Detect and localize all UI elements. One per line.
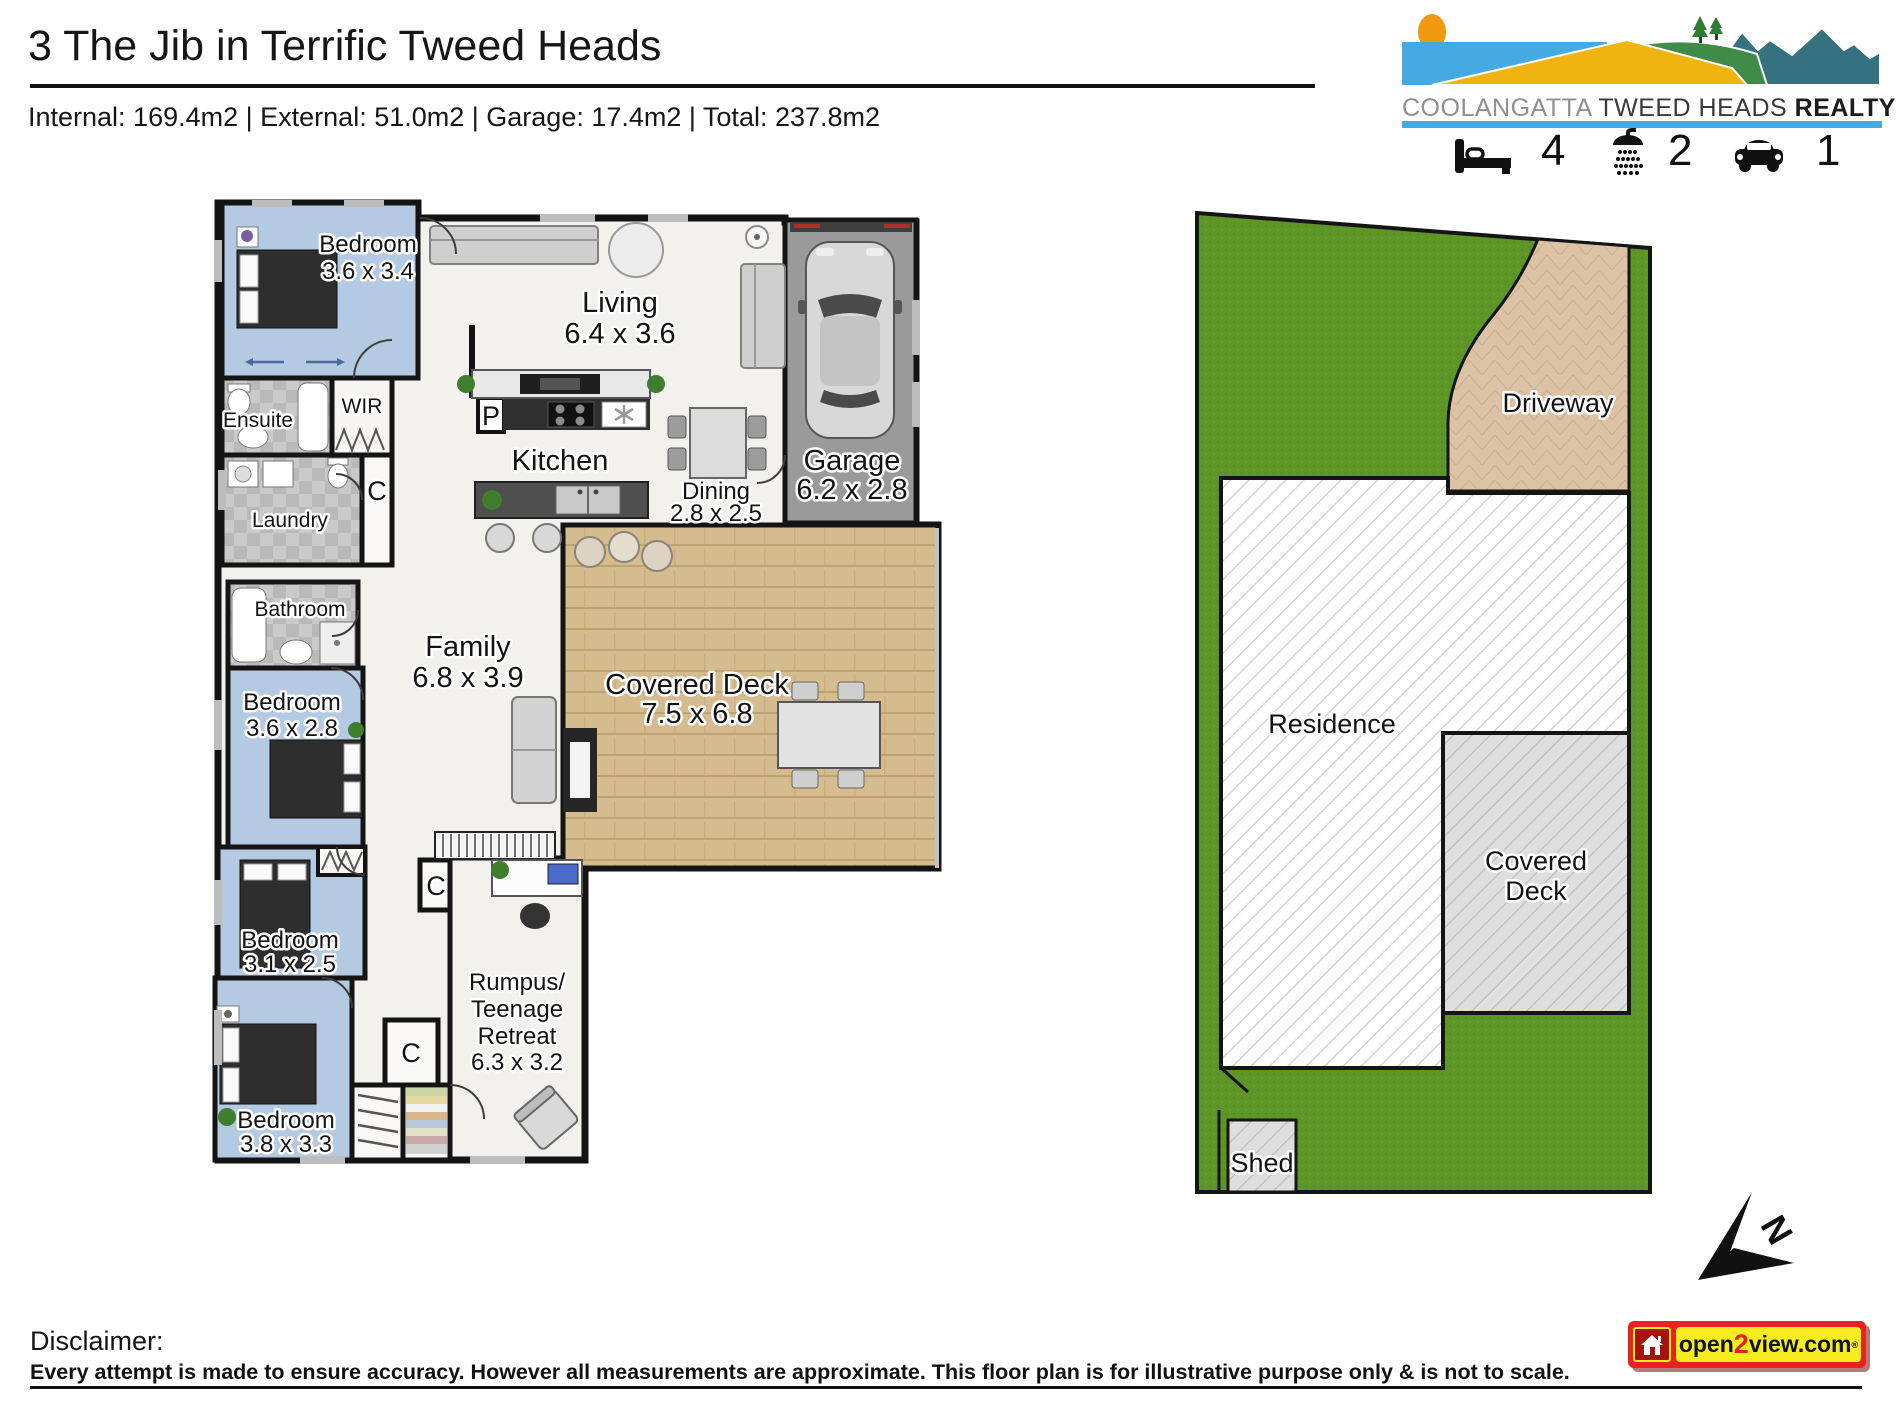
laundry-label: Laundry (252, 509, 328, 532)
closet2-label: C (426, 871, 446, 901)
deck-stool (642, 541, 672, 571)
rumpus-line3: Retreat (478, 1023, 557, 1050)
floorplan-page: 3 The Jib in Terrific Tweed Heads Intern… (0, 0, 1900, 1425)
rumpus-line1: Rumpus/ (469, 969, 565, 996)
shed-label: Shed (1230, 1148, 1293, 1178)
bedroom1-dims: 3.6 x 3.4 (322, 258, 414, 285)
plant-icon (482, 490, 502, 510)
site-plan: Driveway Residence Covered Deck Shed (1197, 213, 1650, 1192)
deck-stool (575, 537, 605, 567)
deck-table (778, 702, 880, 768)
disclaimer-text: Every attempt is made to ensure accuracy… (30, 1360, 1570, 1385)
deck-dims: 7.5 x 6.8 (641, 698, 752, 730)
round-table (609, 223, 663, 277)
closet1-label: C (367, 476, 387, 506)
bedroom3-dims: 3.1 x 2.5 (244, 951, 336, 978)
rumpus-dims: 6.3 x 3.2 (471, 1049, 563, 1076)
bookshelf (406, 1088, 447, 1154)
garage-dims: 6.2 x 2.8 (796, 474, 907, 506)
logo-view: view.com (1749, 1331, 1852, 1358)
family-label: Family (425, 631, 511, 663)
family-dims: 6.8 x 3.9 (412, 662, 523, 694)
car-topview (798, 242, 902, 438)
open2view-logo: open2view.com® (1628, 1321, 1866, 1368)
piano (435, 832, 555, 859)
bedroom1-label: Bedroom (319, 231, 416, 258)
wir-label: WIR (342, 395, 383, 418)
bedroom3-label: Bedroom (241, 927, 338, 954)
living-dims: 6.4 x 3.6 (564, 318, 675, 350)
bedroom2-dims: 3.6 x 2.8 (246, 715, 338, 742)
plant-icon (218, 1108, 236, 1126)
bedroom4-dims: 3.8 x 3.3 (240, 1131, 332, 1158)
stool (486, 524, 514, 552)
dining-dims: 2.8 x 2.5 (670, 500, 762, 527)
north-label: N (1753, 1208, 1802, 1251)
plant-icon (491, 861, 509, 879)
bed-2 (270, 740, 362, 818)
computer-monitor (548, 864, 578, 884)
rumpus-line2: Teenage (471, 996, 563, 1023)
logo-two: 2 (1734, 1329, 1749, 1360)
logo-registered: ® (1852, 1340, 1859, 1350)
open2view-wordmark: open2view.com® (1676, 1327, 1861, 1362)
dining-table (690, 408, 746, 478)
garage-label: Garage (804, 445, 901, 477)
stool (533, 524, 561, 552)
plant-icon (647, 375, 665, 393)
residence-label: Residence (1268, 709, 1396, 739)
sofa-right (741, 264, 785, 368)
house-icon (1633, 1327, 1671, 1362)
deck-label: Covered Deck (605, 669, 789, 701)
closet3-label: C (401, 1038, 421, 1068)
ensuite-label: Ensuite (223, 409, 293, 432)
living-label: Living (582, 287, 658, 319)
office-chair (520, 903, 550, 929)
disclaimer-heading: Disclaimer: (30, 1326, 164, 1357)
driveway-label: Driveway (1502, 388, 1614, 418)
deck-railing (935, 528, 939, 868)
plant-icon (457, 375, 475, 393)
plans-canvas: Bedroom 3.6 x 3.4 Ensuite WIR Laundry C … (0, 0, 1900, 1425)
deck-stool (609, 532, 639, 562)
cooktop (548, 402, 594, 427)
laundry-fixtures (228, 458, 348, 488)
bedroom2-label: Bedroom (243, 689, 340, 716)
pantry-label: P (482, 401, 500, 431)
bathroom-label: Bathroom (254, 598, 345, 621)
site-deck-label-2: Deck (1505, 876, 1567, 906)
footer-divider (30, 1386, 1862, 1389)
floor-plan: Bedroom 3.6 x 3.4 Ensuite WIR Laundry C … (214, 200, 939, 1164)
plant-icon (348, 722, 364, 738)
site-deck-label-1: Covered (1485, 846, 1587, 876)
logo-open: open (1679, 1331, 1734, 1358)
kitchen-label: Kitchen (512, 445, 609, 477)
room-closet-1 (362, 455, 392, 565)
bedroom4-label: Bedroom (237, 1107, 334, 1134)
north-arrow-icon: N (1698, 1192, 1801, 1280)
